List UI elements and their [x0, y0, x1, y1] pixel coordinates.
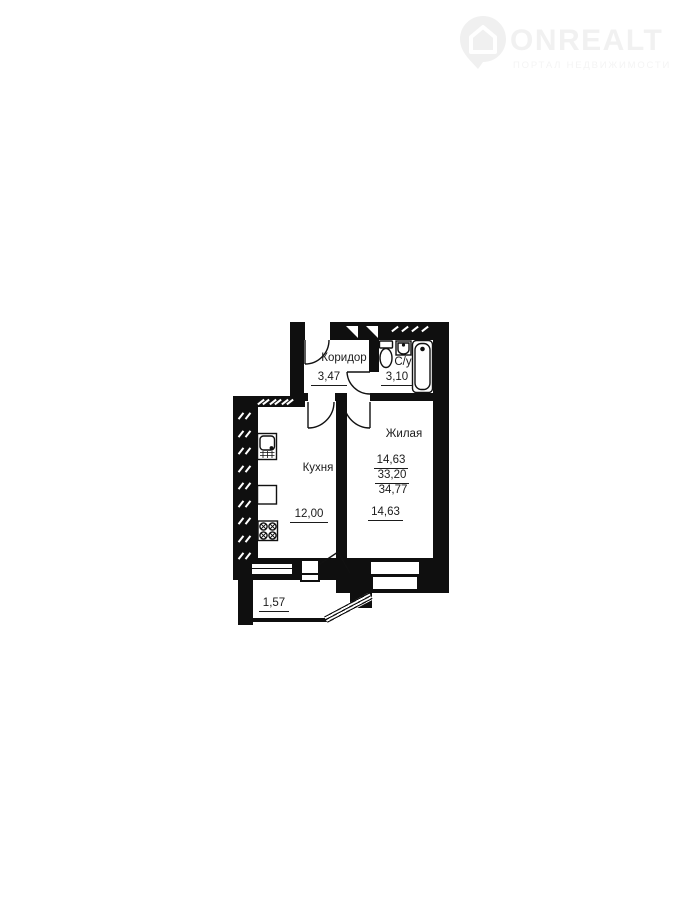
area-summary-living: 14,63 — [374, 454, 408, 469]
stove-icon — [258, 521, 278, 541]
house-pin-icon — [458, 14, 508, 70]
corridor-area: 3,47 — [311, 371, 347, 386]
balcony-area: 1,57 — [259, 597, 289, 612]
kitchen-counter — [258, 486, 277, 505]
floorplan-linework — [228, 318, 458, 638]
living-area: 14,63 — [368, 506, 403, 521]
kitchen-door-swing — [308, 402, 334, 428]
brand-tagline: ПОРТАЛ НЕДВИЖИМОСТИ — [513, 60, 671, 71]
kitchen-sink-icon — [258, 434, 277, 460]
corridor-label: Коридор — [316, 352, 372, 365]
living-door-swing — [344, 402, 370, 428]
kitchen-area: 12,00 — [290, 508, 328, 523]
onrealt-watermark: ONREALT ПОРТАЛ НЕДВИЖИМОСТИ — [458, 14, 673, 80]
living-label: Жилая — [383, 428, 425, 441]
area-summary-total: 34,77 — [376, 484, 410, 498]
washbasin-icon — [396, 341, 411, 355]
kitchen-label: Кухня — [299, 462, 337, 475]
brand-text: ONREALT — [510, 24, 663, 58]
bathroom-door-swing — [347, 372, 370, 394]
area-summary-apartment: 33,20 — [375, 469, 409, 484]
bathroom-area: 3,10 — [381, 371, 413, 386]
bathroom-label: С/у — [390, 356, 416, 369]
balcony-door-swing — [320, 552, 350, 573]
